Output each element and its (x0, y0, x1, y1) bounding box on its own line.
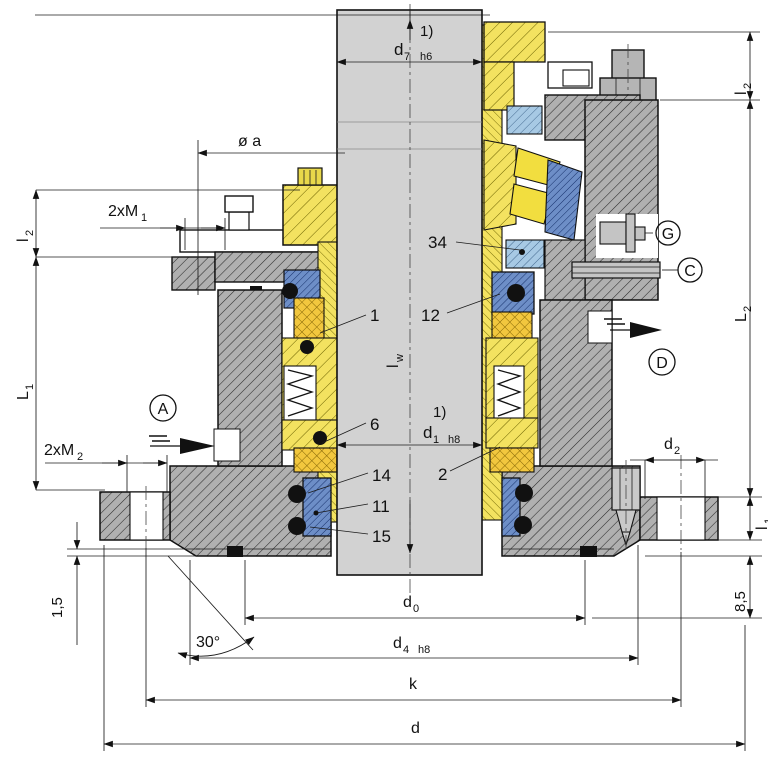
svg-text:d: d (403, 594, 412, 611)
o-ring (313, 431, 327, 445)
bolt-hole-left (130, 492, 163, 540)
part-label-11: 11 (372, 497, 390, 516)
small-bolt (563, 70, 589, 86)
part-label-1: 1 (370, 306, 379, 325)
elastomer-lower-left (294, 448, 337, 472)
svg-text:d: d (394, 40, 403, 59)
svg-text:2: 2 (742, 83, 754, 89)
svg-text:L: L (733, 313, 750, 322)
svg-text:d: d (664, 436, 673, 453)
svg-text:7: 7 (404, 51, 410, 63)
o-ring (507, 284, 525, 302)
part-label-14: 14 (372, 466, 391, 485)
svg-text:l: l (15, 238, 32, 242)
drawing-canvas: 1) d 7 h6 l 2 ø a 2xM 1 (0, 0, 768, 768)
footnote-marker-top: 1) (420, 23, 433, 40)
svg-text:h8: h8 (418, 644, 430, 656)
part-label-6: 6 (370, 415, 379, 434)
svg-text:1: 1 (433, 434, 439, 446)
technical-drawing-mechanical-seal: 1) d 7 h6 l 2 ø a 2xM 1 (0, 0, 768, 768)
gland-bolt-head (225, 196, 253, 212)
svg-text:d: d (393, 635, 402, 652)
port-d-bore (588, 311, 612, 343)
port-a-label: A (158, 401, 169, 418)
svg-text:k: k (409, 676, 418, 693)
gasket-left (227, 546, 243, 557)
drive-collar (283, 185, 340, 245)
svg-text:2: 2 (24, 230, 36, 236)
follower-left (282, 420, 337, 450)
gland-bolt-shank (229, 212, 249, 230)
svg-text:2: 2 (674, 445, 680, 457)
svg-text:2xM: 2xM (108, 203, 138, 220)
svg-text:8,5: 8,5 (732, 591, 749, 612)
svg-text:1: 1 (141, 212, 147, 224)
o-ring (515, 484, 533, 502)
svg-text:h8: h8 (448, 434, 460, 446)
o-ring (514, 516, 532, 534)
port-d-label: D (656, 355, 668, 372)
svg-text:l: l (754, 526, 768, 530)
svg-text:h6: h6 (420, 51, 432, 63)
grease-fitting (596, 214, 658, 258)
gland-flange-tab (172, 257, 215, 290)
svg-text:30°: 30° (196, 634, 220, 651)
svg-text:1: 1 (763, 518, 768, 524)
svg-text:4: 4 (403, 644, 409, 656)
svg-text:2xM: 2xM (44, 442, 74, 459)
svg-text:2: 2 (77, 451, 83, 463)
bearing-spacer-yellow (484, 62, 514, 110)
part-label-2: 2 (438, 465, 447, 484)
follower-right (486, 418, 538, 448)
bearing-seal-34 (506, 240, 544, 268)
svg-text:1,5: 1,5 (49, 597, 66, 618)
svg-text:L: L (15, 391, 32, 400)
footnote-marker-center: 1) (433, 404, 446, 421)
svg-text:d: d (411, 720, 420, 737)
elastomer-lower-right (490, 448, 534, 472)
svg-text:l: l (733, 91, 750, 95)
gasket-right (580, 546, 597, 557)
svg-text:2: 2 (742, 306, 754, 312)
seal-ring-top (507, 106, 542, 134)
svg-text:ø a: ø a (238, 133, 261, 150)
o-ring (300, 340, 314, 354)
svg-text:d: d (423, 423, 432, 442)
svg-text:l: l (385, 364, 402, 368)
port-g-label: G (662, 226, 674, 243)
bearing-lock-collar (484, 22, 545, 62)
part-label-34: 34 (428, 233, 447, 252)
o-ring (288, 485, 306, 503)
svg-text:w: w (394, 354, 406, 363)
port-c-label: C (684, 263, 696, 280)
o-ring (288, 517, 306, 535)
left-seal-internals (282, 242, 337, 536)
collar-set-screw (298, 168, 322, 185)
drive-pin (572, 262, 660, 278)
svg-text:1: 1 (24, 384, 36, 390)
port-a-bore (214, 429, 240, 461)
part-label-12: 12 (421, 306, 440, 325)
shaft (337, 10, 482, 575)
o-ring (282, 283, 298, 299)
svg-text:0: 0 (413, 603, 419, 615)
part-label-15: 15 (372, 527, 391, 546)
